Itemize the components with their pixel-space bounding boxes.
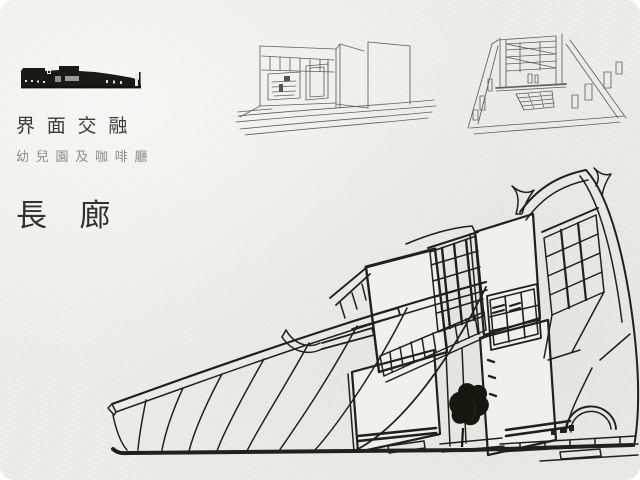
building-axonometric-line-drawing (0, 0, 640, 480)
presentation-slide: 界面交融 幼兒園及咖啡廳 長廊 (0, 0, 640, 480)
tree-silhouette (449, 383, 489, 447)
